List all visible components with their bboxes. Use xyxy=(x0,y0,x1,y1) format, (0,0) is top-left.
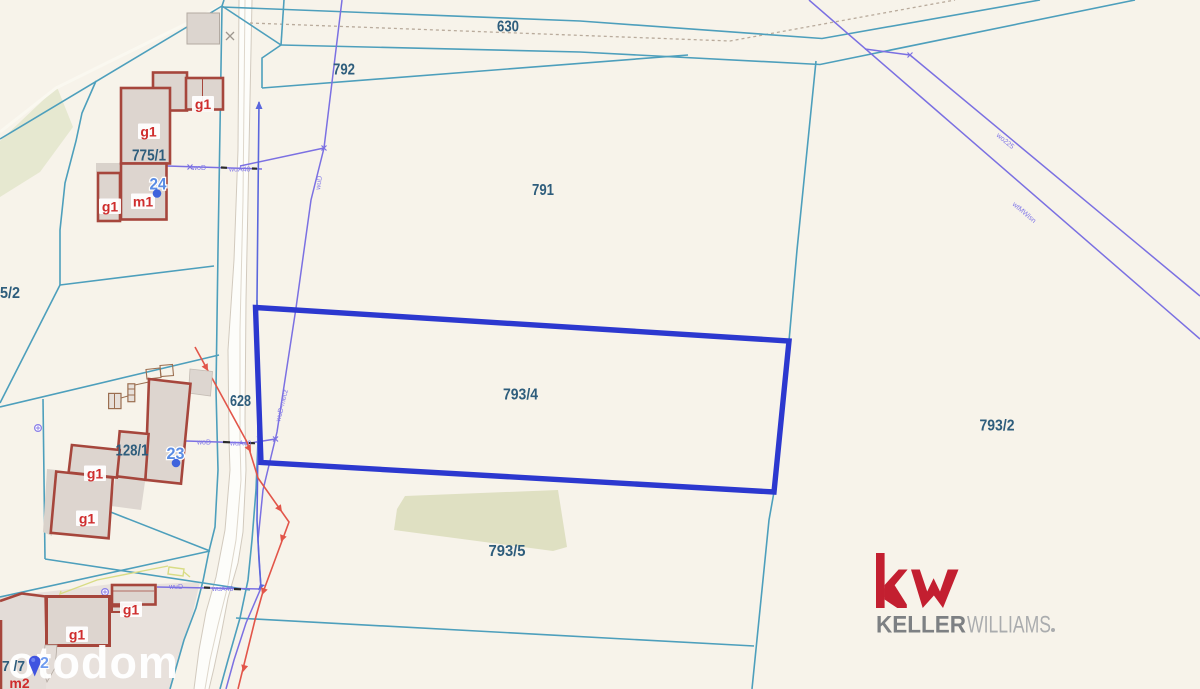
svg-text:791: 791 xyxy=(532,182,554,199)
svg-text:woD: woD xyxy=(191,165,206,172)
svg-text:7 /7: 7 /7 xyxy=(2,658,25,675)
svg-text:g1: g1 xyxy=(123,602,140,618)
svg-text:wuD: wuD xyxy=(168,584,183,591)
svg-text:wuA48: wuA48 xyxy=(211,586,234,593)
svg-text:g1: g1 xyxy=(79,511,96,527)
svg-text:775/1: 775/1 xyxy=(132,148,166,165)
svg-text:628: 628 xyxy=(230,393,251,410)
svg-text:793/5: 793/5 xyxy=(489,543,526,560)
svg-text:g1: g1 xyxy=(102,199,119,215)
svg-text:793/2: 793/2 xyxy=(980,418,1015,435)
svg-text:g1: g1 xyxy=(87,466,104,482)
svg-text:792: 792 xyxy=(333,62,355,79)
svg-text:g1: g1 xyxy=(69,627,86,643)
svg-text:g1: g1 xyxy=(140,124,157,140)
svg-text:woD: woD xyxy=(196,440,211,447)
svg-text:793/4: 793/4 xyxy=(503,387,538,404)
svg-text:128/1: 128/1 xyxy=(116,443,149,460)
svg-text:m1: m1 xyxy=(133,194,153,210)
svg-text:630: 630 xyxy=(497,19,519,36)
svg-text:wuA40: wuA40 xyxy=(228,167,251,174)
svg-text:KELLER: KELLER xyxy=(876,612,966,639)
svg-text:m2: m2 xyxy=(9,675,29,689)
svg-text:75/2: 75/2 xyxy=(0,285,20,302)
svg-text:WILLIAMS: WILLIAMS xyxy=(967,612,1051,639)
svg-text:2: 2 xyxy=(40,655,49,672)
svg-text:g1: g1 xyxy=(195,96,212,112)
